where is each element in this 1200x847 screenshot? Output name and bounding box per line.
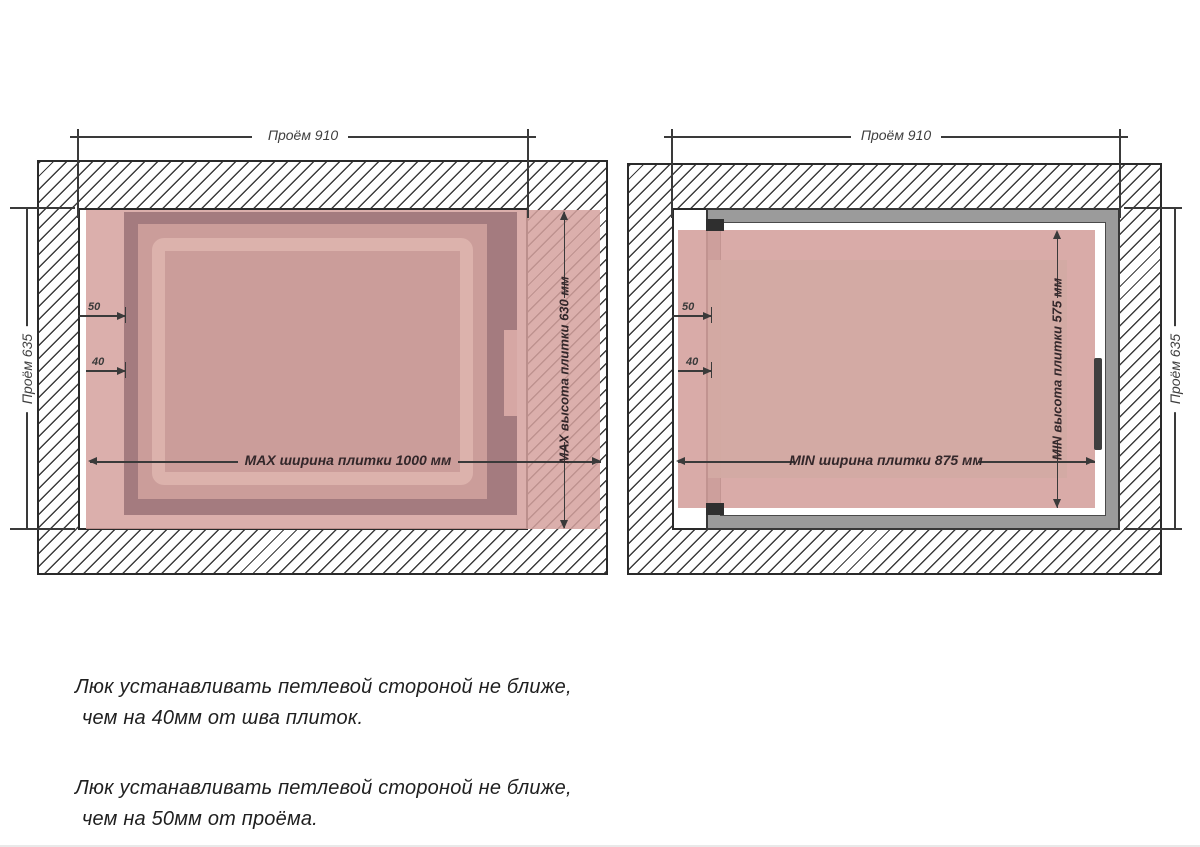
note-line: Люк устанавливать петлевой стороной не б…	[75, 672, 635, 703]
tile-min-inner-panel	[708, 260, 1067, 478]
opening-height-label: Проём 635	[1166, 326, 1184, 412]
dim-tick	[711, 307, 713, 323]
dim-extension-line	[1124, 207, 1182, 209]
offset-40-label: 40	[686, 356, 698, 368]
offset-50-label: 50	[682, 301, 694, 313]
arrowhead	[1053, 230, 1061, 239]
tile-min-height-label: MIN высота плитки 575 мм	[1050, 278, 1065, 460]
note-line: Люк устанавливать петлевой стороной не б…	[75, 773, 635, 804]
arrowhead	[676, 457, 685, 465]
tile-min-width-label: MIN ширина плитки 875 мм	[711, 452, 1061, 468]
right-diagram: Проём 910 Проём 635 50 40 MIN ширина пли…	[0, 0, 1200, 620]
arrowhead	[1086, 457, 1095, 465]
hinge-bottom	[706, 503, 724, 515]
hinge-top	[706, 219, 724, 231]
note-hinge-seam: Люк устанавливать петлевой стороной не б…	[75, 672, 635, 734]
note-line: чем на 40мм от шва плиток.	[75, 703, 635, 734]
opening-width-label: Проём 910	[672, 127, 1120, 143]
note-hinge-opening: Люк устанавливать петлевой стороной не б…	[75, 773, 635, 835]
handle-bar	[1094, 358, 1102, 450]
note-line: чем на 50мм от проёма.	[75, 804, 635, 835]
installation-notes: Люк устанавливать петлевой стороной не б…	[75, 672, 635, 835]
technical-drawing-page: Проём 910 Проём 635 50 40 MAX ширина пли…	[0, 0, 1200, 847]
dim-extension-line	[1124, 528, 1182, 530]
dim-tick	[711, 362, 713, 378]
arrowhead	[1053, 499, 1061, 508]
